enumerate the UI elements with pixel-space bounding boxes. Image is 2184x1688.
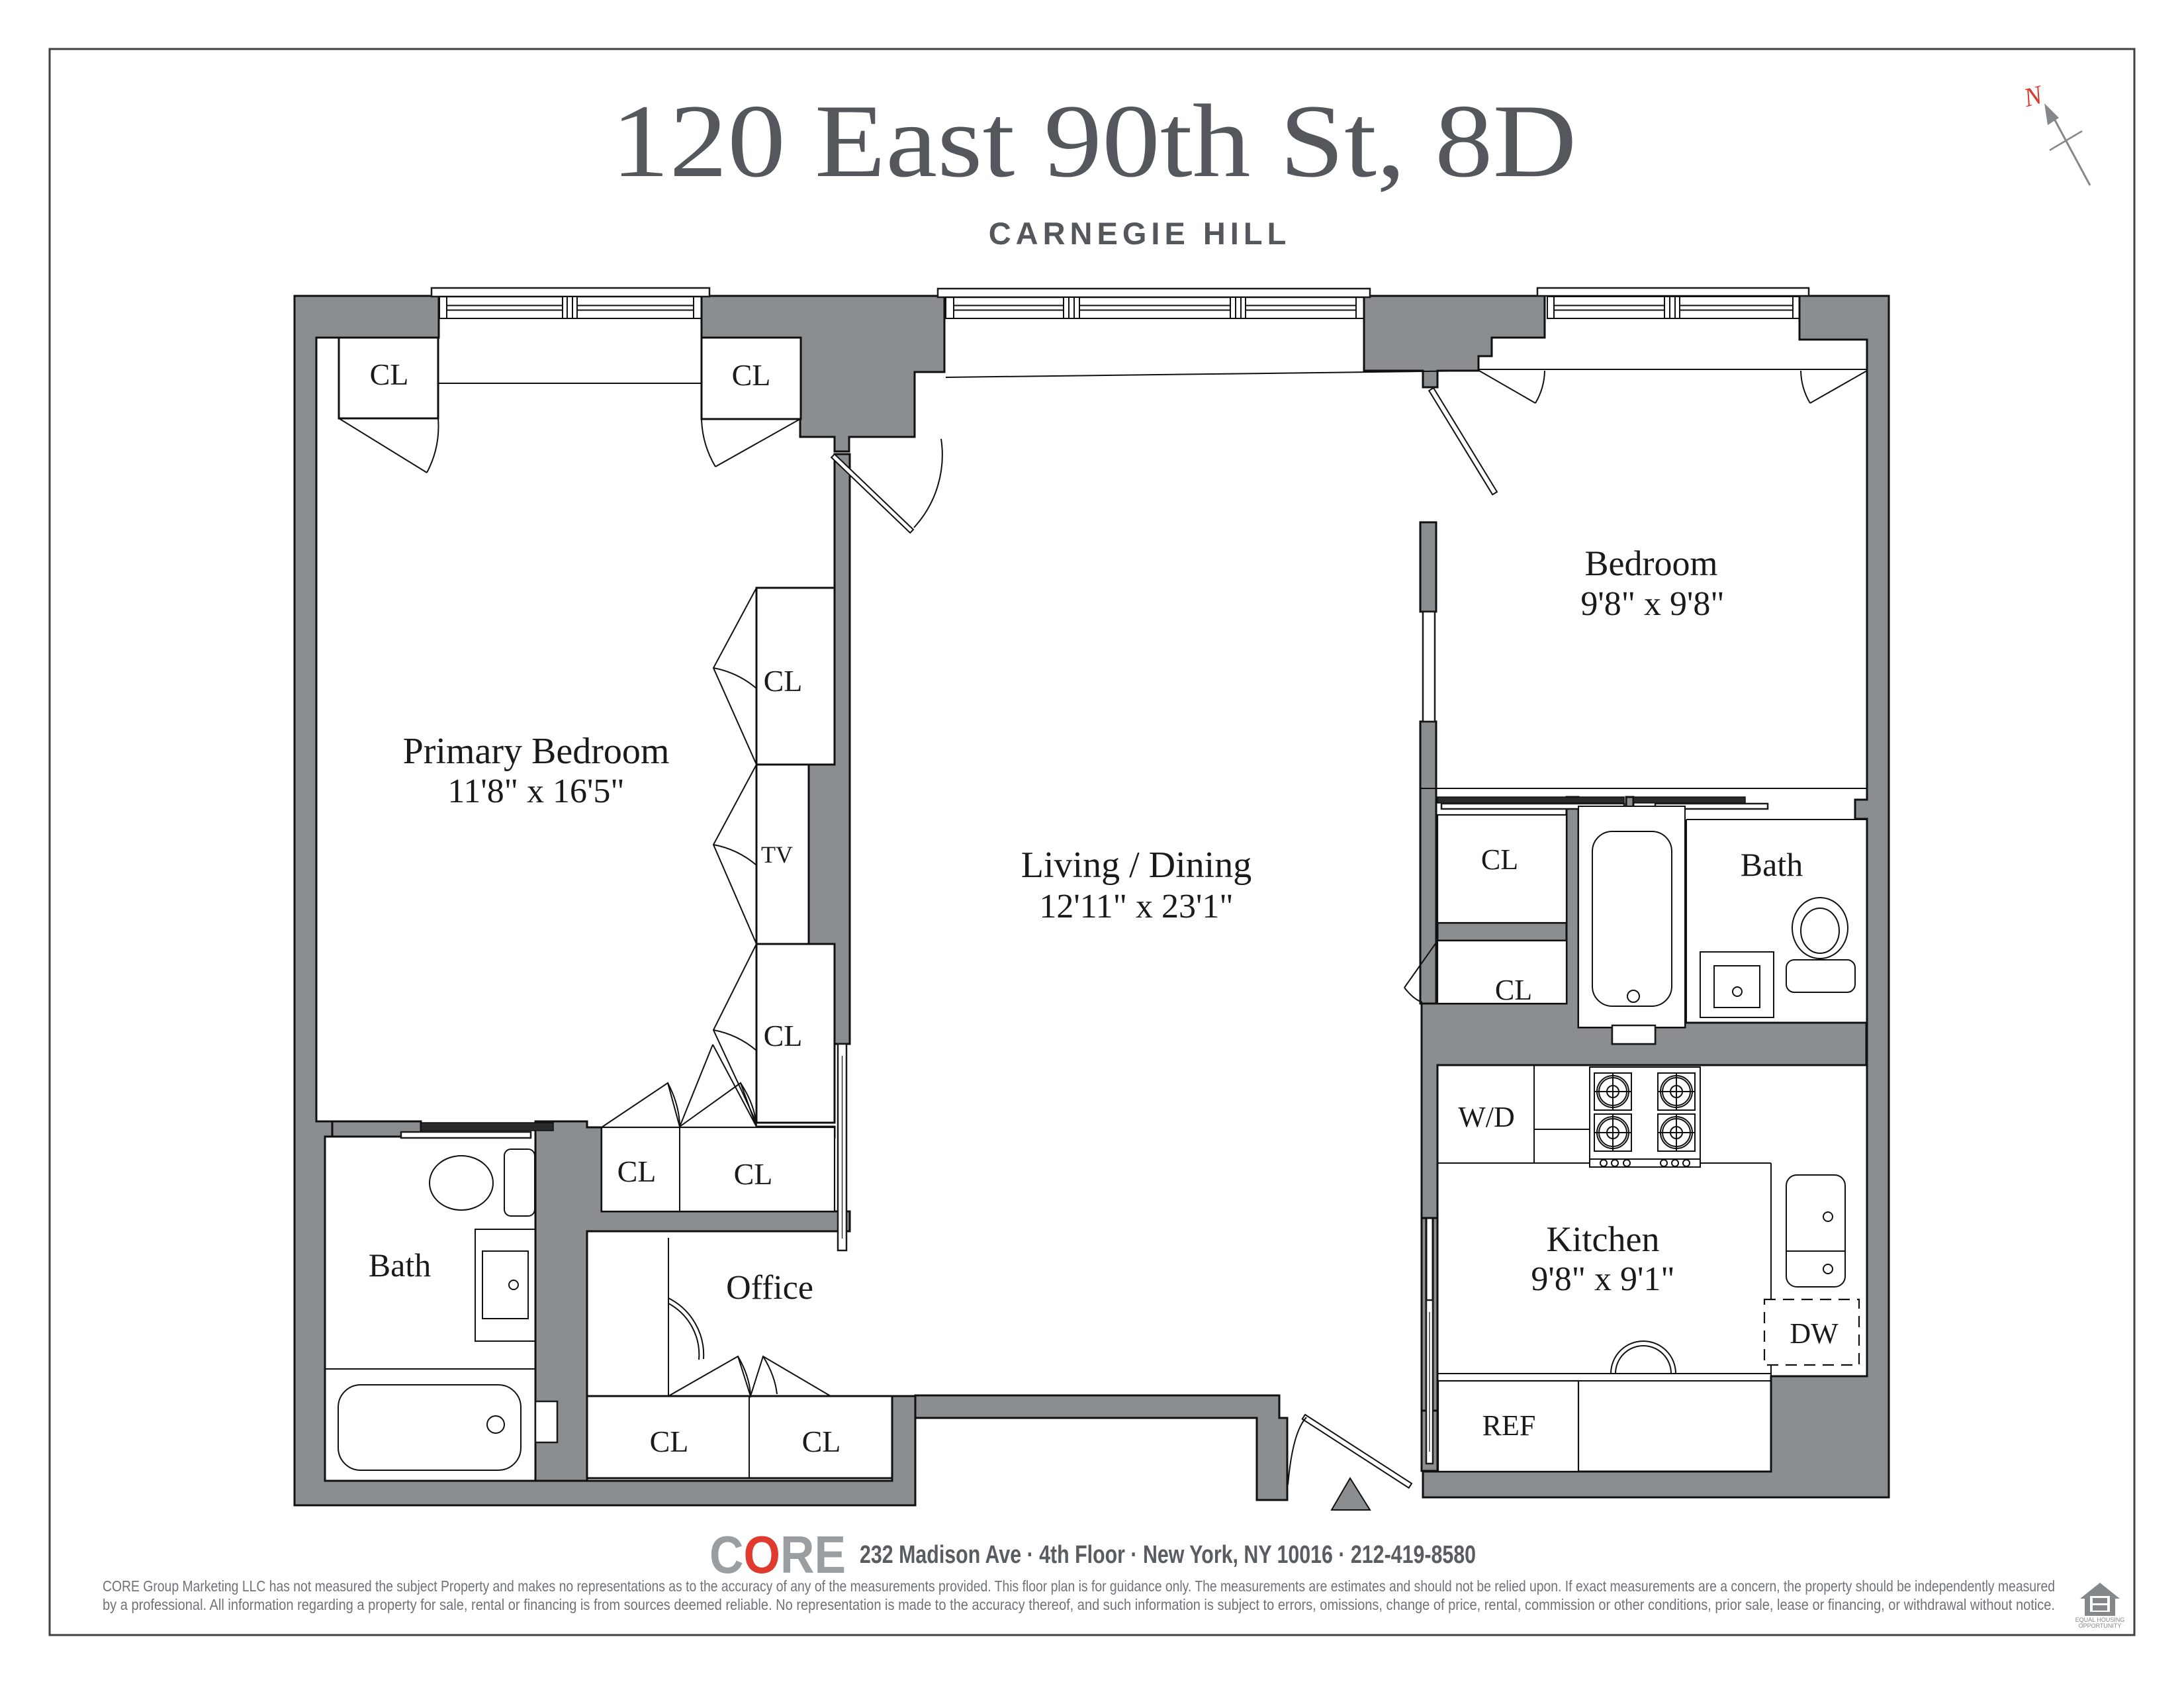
- svg-text:Bath: Bath: [369, 1246, 431, 1284]
- svg-text:CARNEGIE HILL: CARNEGIE HILL: [989, 216, 1291, 251]
- svg-text:CL: CL: [802, 1425, 841, 1458]
- svg-text:232 Madison Ave · 4th Floor ·: 232 Madison Ave · 4th Floor · New York, …: [860, 1541, 1476, 1569]
- svg-text:CL: CL: [732, 358, 771, 392]
- svg-text:CL: CL: [764, 1019, 803, 1053]
- svg-text:Bath: Bath: [1741, 846, 1803, 883]
- svg-text:9'8" x 9'8": 9'8" x 9'8": [1580, 585, 1724, 623]
- svg-text:CORE: CORE: [709, 1525, 846, 1584]
- svg-text:TV: TV: [761, 841, 793, 868]
- svg-text:Kitchen: Kitchen: [1547, 1219, 1660, 1259]
- svg-text:by a professional. All informa: by a professional. All information regar…: [103, 1596, 2055, 1613]
- svg-text:W/D: W/D: [1458, 1101, 1515, 1133]
- svg-text:Living / Dining: Living / Dining: [1021, 845, 1251, 886]
- svg-text:9'8" x 9'1": 9'8" x 9'1": [1531, 1260, 1674, 1298]
- svg-text:CL: CL: [1495, 974, 1532, 1006]
- svg-text:CL: CL: [764, 664, 803, 698]
- svg-text:DW: DW: [1790, 1317, 1839, 1350]
- svg-text:REF: REF: [1482, 1409, 1536, 1442]
- svg-text:Bedroom: Bedroom: [1585, 543, 1718, 583]
- svg-text:120 East 90th St, 8D: 120 East 90th St, 8D: [612, 83, 1577, 199]
- svg-text:OPPORTUNITY: OPPORTUNITY: [2079, 1622, 2122, 1629]
- svg-text:Primary Bedroom: Primary Bedroom: [403, 731, 670, 772]
- svg-text:11'8" x 16'5": 11'8" x 16'5": [447, 773, 624, 810]
- svg-text:CORE Group Marketing LLC has n: CORE Group Marketing LLC has not measure…: [103, 1577, 2055, 1595]
- svg-text:12'11" x 23'1": 12'11" x 23'1": [1039, 888, 1233, 925]
- svg-text:CL: CL: [734, 1157, 773, 1191]
- svg-text:CL: CL: [1481, 843, 1518, 876]
- svg-text:CL: CL: [650, 1425, 689, 1458]
- svg-text:Office: Office: [726, 1269, 813, 1307]
- svg-text:CL: CL: [370, 357, 409, 391]
- svg-text:CL: CL: [617, 1154, 657, 1188]
